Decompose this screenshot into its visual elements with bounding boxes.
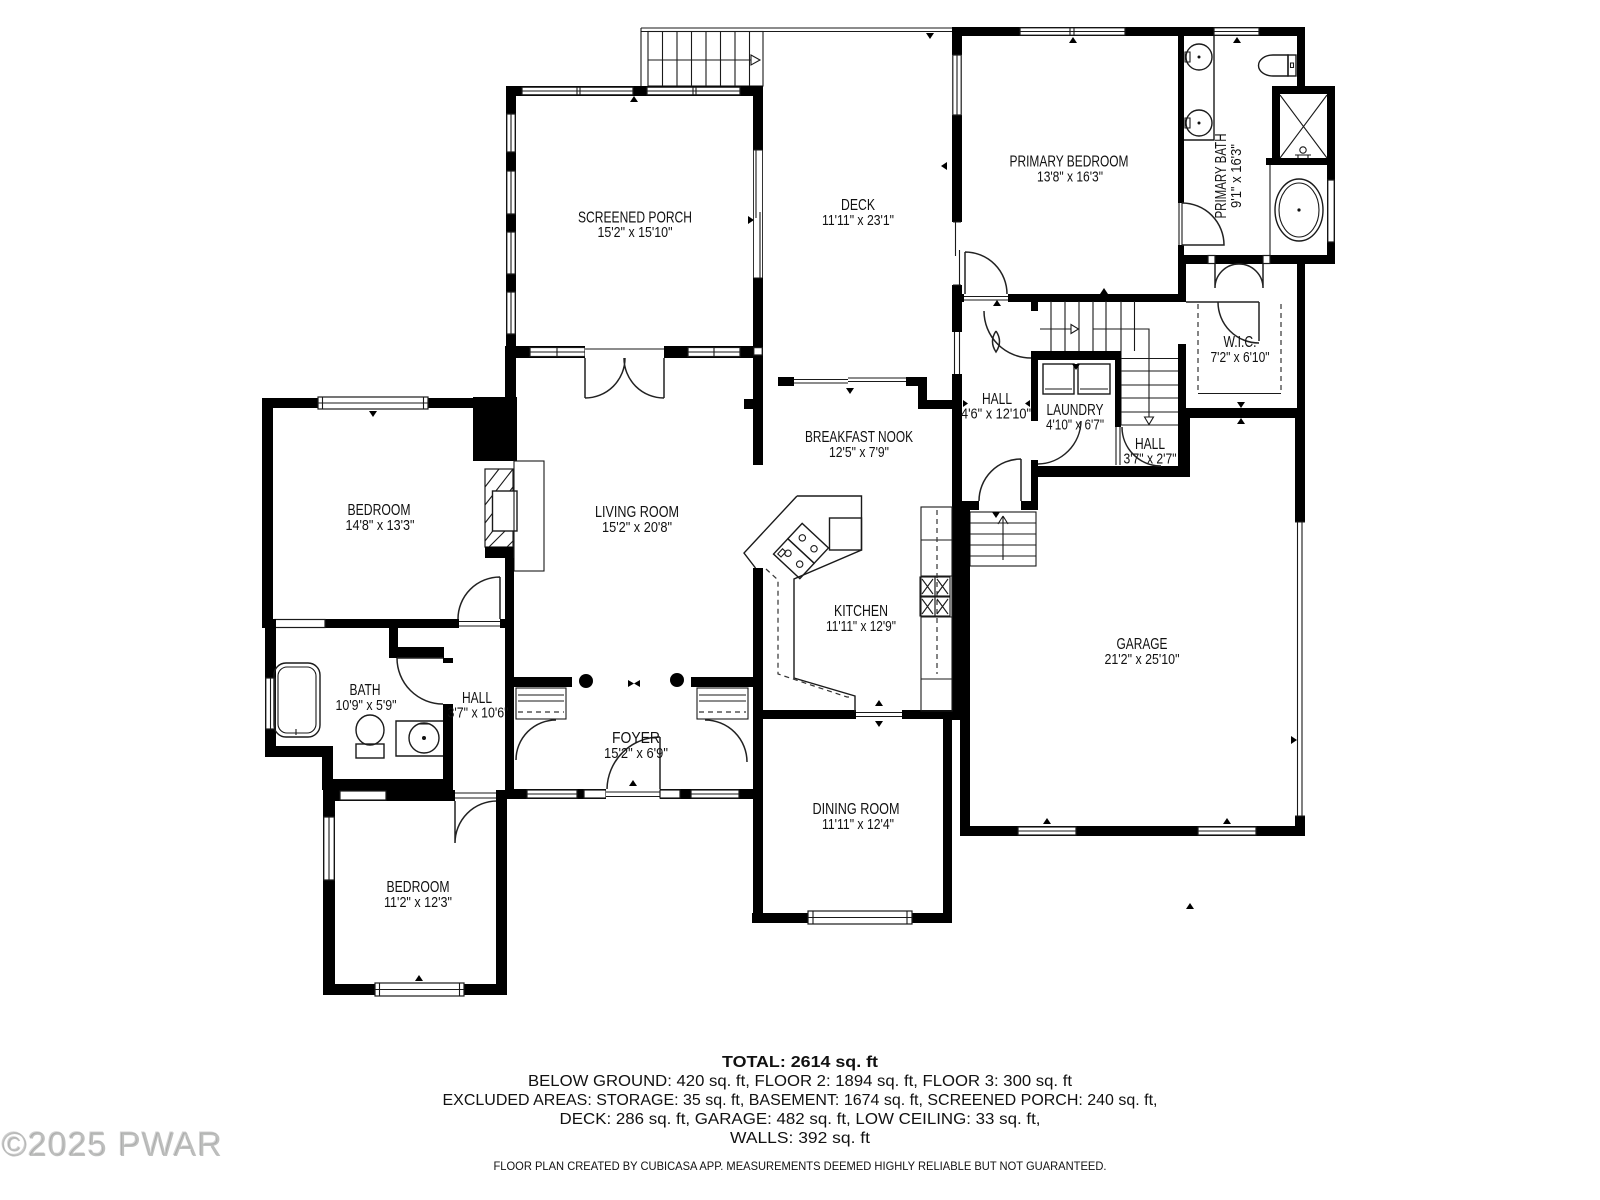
- svg-text:HALL: HALL: [462, 690, 492, 707]
- svg-text:3'7" x 2'7": 3'7" x 2'7": [1124, 452, 1177, 468]
- svg-text:10'9" x 5'9": 10'9" x 5'9": [336, 698, 397, 714]
- svg-text:4'10" x 6'7": 4'10" x 6'7": [1046, 418, 1104, 434]
- svg-text:DECK: 286 sq. ft, GARAGE: 482: DECK: 286 sq. ft, GARAGE: 482 sq. ft, LO…: [560, 1111, 1041, 1128]
- svg-text:21'2" x 25'10": 21'2" x 25'10": [1105, 652, 1180, 668]
- svg-text:9'1" x 16'3": 9'1" x 16'3": [1229, 144, 1245, 208]
- svg-text:BEDROOM: BEDROOM: [348, 502, 411, 519]
- svg-text:11'11" x 12'9": 11'11" x 12'9": [826, 619, 896, 635]
- svg-text:HALL: HALL: [982, 391, 1012, 408]
- svg-text:BATH: BATH: [350, 682, 381, 699]
- svg-text:PRIMARY BATH: PRIMARY BATH: [1213, 134, 1230, 219]
- svg-text:4'6" x 12'10": 4'6" x 12'10": [961, 407, 1031, 423]
- svg-text:HALL: HALL: [1135, 436, 1165, 453]
- svg-text:BELOW GROUND: 420 sq. ft, FLOO: BELOW GROUND: 420 sq. ft, FLOOR 2: 1894 …: [528, 1073, 1073, 1090]
- svg-text:14'8" x 13'3": 14'8" x 13'3": [346, 518, 415, 534]
- svg-text:11'2" x 12'3": 11'2" x 12'3": [384, 895, 452, 911]
- svg-text:7'2" x 6'10": 7'2" x 6'10": [1211, 350, 1270, 366]
- svg-text:BEDROOM: BEDROOM: [387, 879, 450, 896]
- svg-text:TOTAL: 2614 sq. ft: TOTAL: 2614 sq. ft: [722, 1054, 879, 1071]
- svg-text:11'11" x 23'1": 11'11" x 23'1": [822, 213, 894, 229]
- svg-text:KITCHEN: KITCHEN: [834, 603, 888, 620]
- svg-text:DINING ROOM: DINING ROOM: [813, 801, 900, 818]
- svg-text:LAUNDRY: LAUNDRY: [1047, 402, 1104, 419]
- svg-text:WALLS: 392 sq. ft: WALLS: 392 sq. ft: [730, 1130, 871, 1147]
- svg-text:15'2" x 6'9": 15'2" x 6'9": [604, 746, 668, 762]
- svg-text:15'2" x 20'8": 15'2" x 20'8": [602, 520, 672, 536]
- svg-text:LIVING ROOM: LIVING ROOM: [595, 504, 679, 521]
- svg-text:PRIMARY BEDROOM: PRIMARY BEDROOM: [1010, 154, 1129, 171]
- svg-text:EXCLUDED AREAS: STORAGE: 35 sq: EXCLUDED AREAS: STORAGE: 35 sq. ft, BASE…: [443, 1092, 1158, 1109]
- svg-text:FLOOR PLAN CREATED BY CUBICASA: FLOOR PLAN CREATED BY CUBICASA APP. MEAS…: [494, 1159, 1107, 1173]
- svg-text:13'8" x 16'3": 13'8" x 16'3": [1037, 170, 1103, 186]
- svg-text:12'5" x 7'9": 12'5" x 7'9": [829, 445, 889, 461]
- svg-text:SCREENED PORCH: SCREENED PORCH: [578, 210, 692, 227]
- svg-text:11'11" x 12'4": 11'11" x 12'4": [822, 817, 894, 833]
- svg-text:FOYER: FOYER: [612, 730, 660, 747]
- svg-text:15'2" x 15'10": 15'2" x 15'10": [598, 225, 673, 241]
- svg-text:3'7" x 10'6": 3'7" x 10'6": [448, 706, 509, 722]
- svg-text:BREAKFAST NOOK: BREAKFAST NOOK: [805, 429, 914, 446]
- svg-text:W.I.C.: W.I.C.: [1224, 334, 1257, 351]
- svg-text:DECK: DECK: [841, 197, 876, 214]
- svg-text:GARAGE: GARAGE: [1117, 636, 1168, 653]
